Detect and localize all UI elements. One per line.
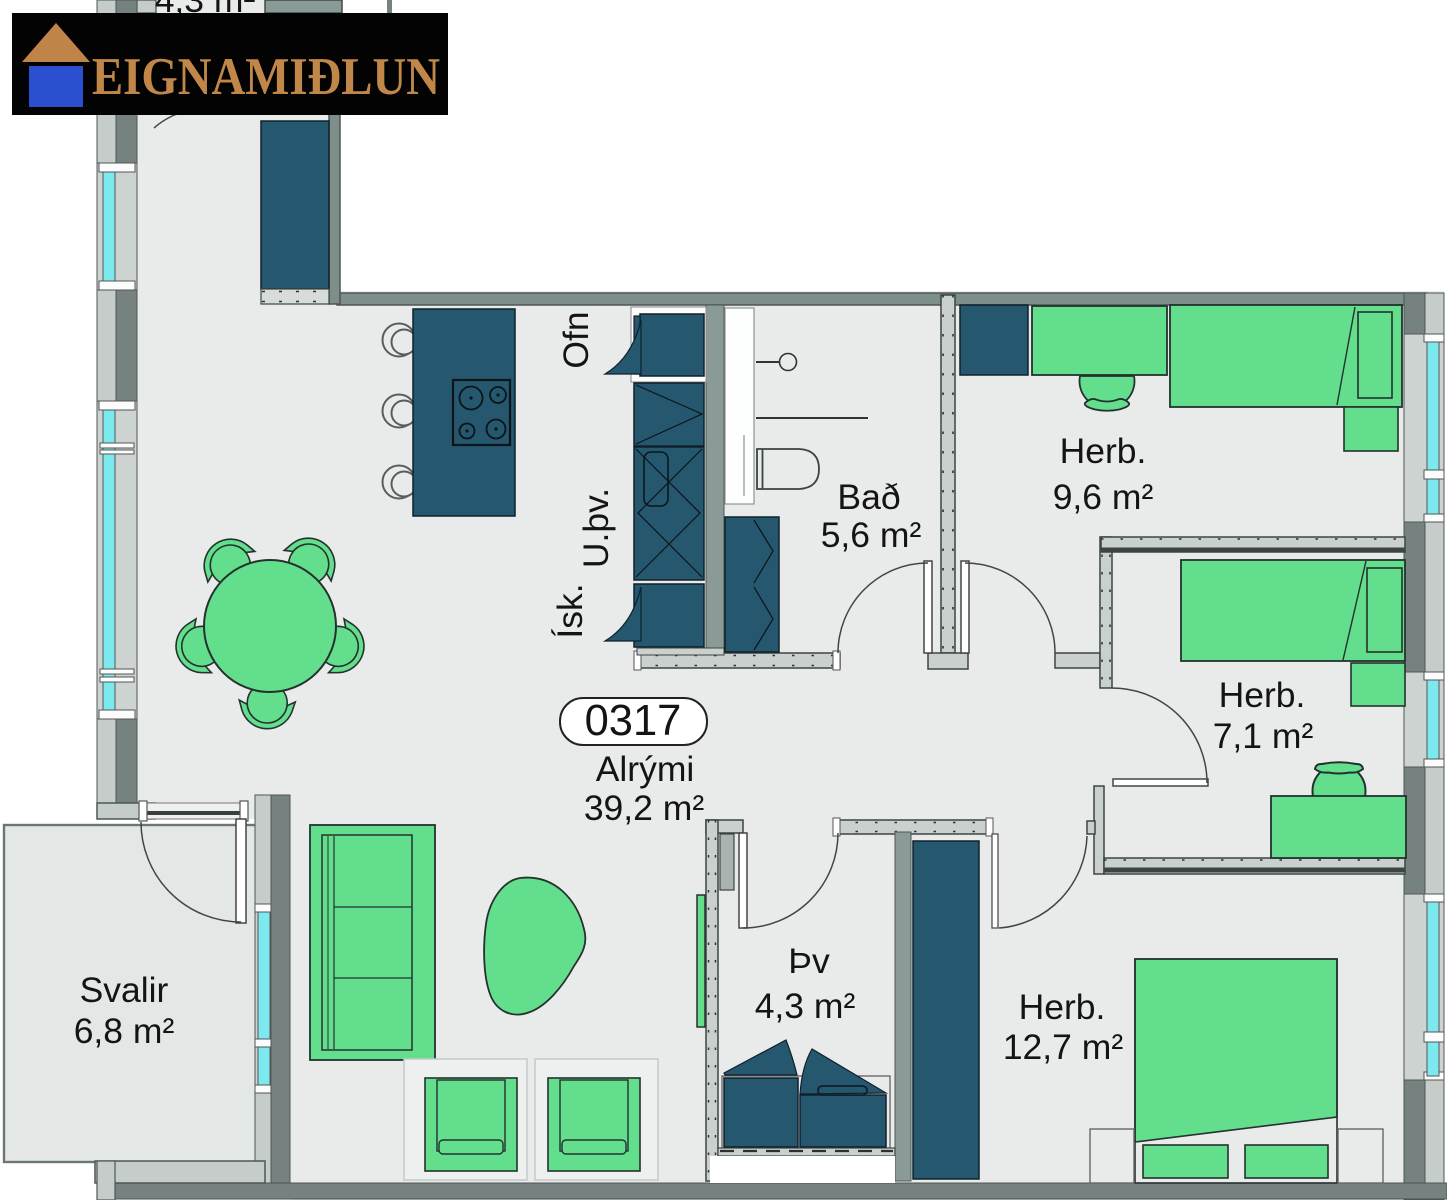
svg-text:Ofn: Ofn: [556, 311, 596, 368]
svg-text:Þv: Þv: [788, 941, 830, 981]
svg-text:Svalir: Svalir: [80, 970, 169, 1010]
svg-text:Herb.: Herb.: [1219, 675, 1306, 715]
svg-text:9,6 m²: 9,6 m²: [1053, 477, 1154, 517]
svg-text:39,2 m²: 39,2 m²: [584, 788, 705, 828]
svg-text:0317: 0317: [585, 697, 682, 745]
svg-text:Herb.: Herb.: [1060, 431, 1147, 471]
svg-text:5,6 m²: 5,6 m²: [821, 515, 922, 555]
svg-text:6,8 m²: 6,8 m²: [74, 1011, 175, 1051]
svg-text:Ísk.: Ísk.: [550, 583, 590, 638]
svg-text:4,3 m²: 4,3 m²: [755, 986, 856, 1026]
svg-text:Herb.: Herb.: [1019, 987, 1106, 1027]
svg-text:7,1 m²: 7,1 m²: [1213, 716, 1314, 756]
svg-text:Bað: Bað: [837, 477, 900, 517]
svg-text:EIGNAMIÐLUN: EIGNAMIÐLUN: [92, 48, 440, 106]
svg-text:U.þv.: U.þv.: [576, 488, 616, 568]
svg-text:Alrými: Alrými: [596, 749, 695, 789]
svg-text:12,7 m²: 12,7 m²: [1003, 1027, 1124, 1067]
